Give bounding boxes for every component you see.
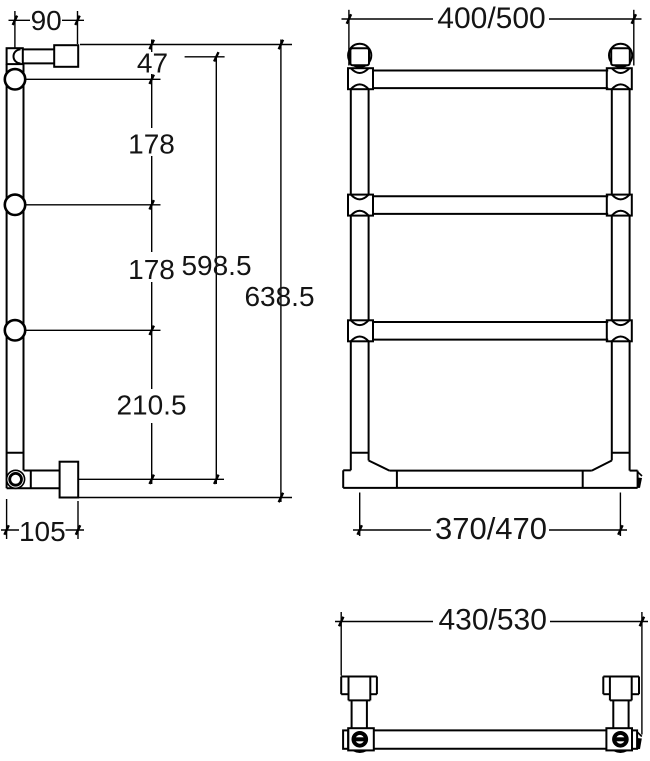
svg-text:400/500: 400/500: [437, 2, 545, 35]
svg-text:178: 178: [128, 129, 175, 160]
svg-text:370/470: 370/470: [435, 511, 547, 546]
svg-text:430/530: 430/530: [438, 604, 546, 637]
svg-text:105: 105: [19, 516, 66, 547]
svg-text:90: 90: [31, 5, 62, 36]
svg-text:47: 47: [137, 48, 168, 79]
svg-text:638.5: 638.5: [244, 281, 314, 312]
svg-text:210.5: 210.5: [116, 390, 186, 421]
svg-text:178: 178: [128, 254, 175, 285]
svg-text:598.5: 598.5: [181, 250, 251, 281]
